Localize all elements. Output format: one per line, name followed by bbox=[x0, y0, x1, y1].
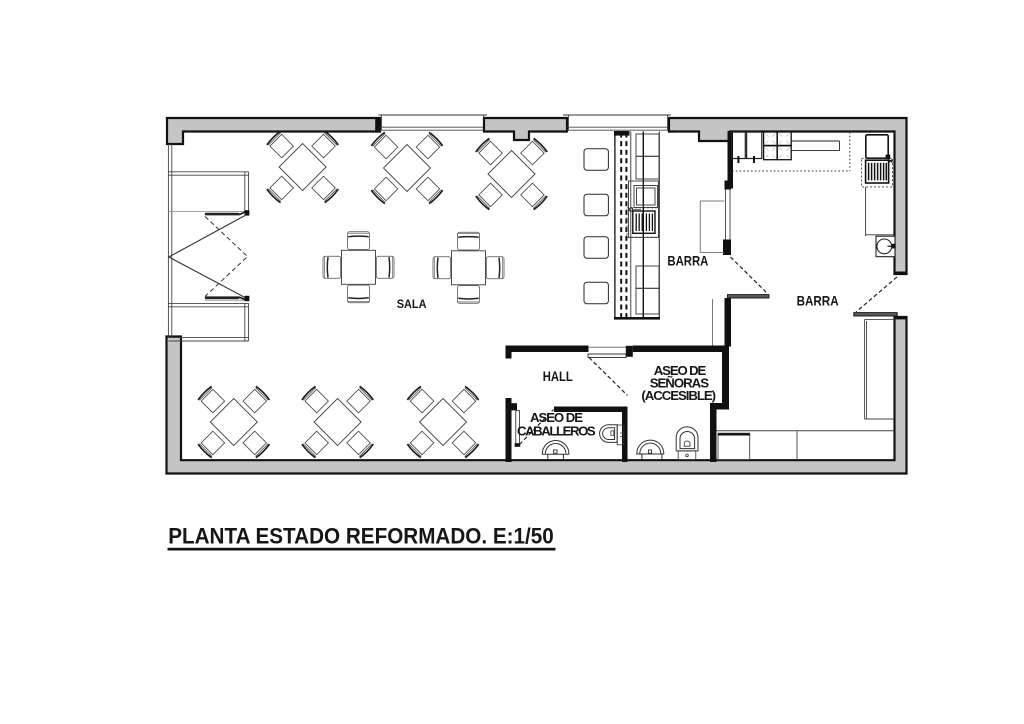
svg-text:PLANTA ESTADO REFORMADO. E:1/5: PLANTA ESTADO REFORMADO. E:1/50 bbox=[168, 524, 554, 549]
svg-text:(ACCESIBLE): (ACCESIBLE) bbox=[641, 388, 716, 403]
svg-text:BARRA: BARRA bbox=[667, 254, 708, 269]
svg-text:SALA: SALA bbox=[397, 297, 427, 311]
svg-text:BARRA: BARRA bbox=[797, 294, 839, 309]
svg-text:HALL: HALL bbox=[543, 368, 573, 384]
svg-text:CABALLEROS: CABALLEROS bbox=[517, 424, 596, 439]
